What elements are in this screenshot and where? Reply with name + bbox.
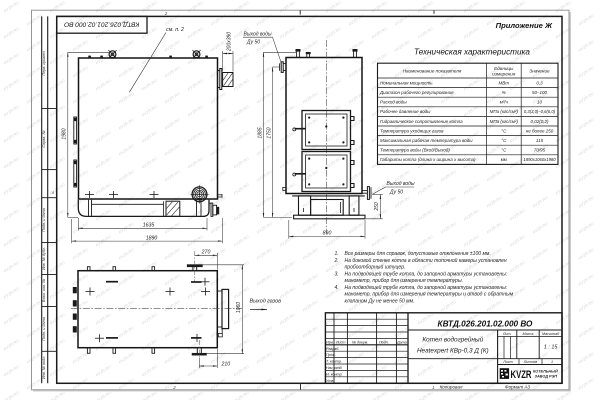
svg-text:KVZR: KVZR (511, 369, 532, 381)
svg-text:клапаном Ду не менее 50 мм.: клапаном Ду не менее 50 мм. (345, 298, 415, 304)
svg-text:Гидравлическое сопротивление к: Гидравлическое сопротивление котла (380, 119, 463, 124)
svg-text:Единицы: Единицы (494, 66, 514, 71)
svg-text:КВТД.026.201.02.000 ВО: КВТД.026.201.02.000 ВО (438, 320, 534, 329)
svg-text:1980: 1980 (61, 128, 67, 139)
svg-text:На подводящей трубе котла, до: На подводящей трубе котла, до запорной а… (345, 270, 508, 277)
svg-text:Габариты котла (длина х ширина: Габариты котла (длина х ширина х высота) (380, 157, 476, 162)
svg-text:Значение: Значение (529, 69, 550, 74)
svg-text:не более 250: не более 250 (526, 128, 554, 133)
svg-text:0,3(3,0)–0,6(6,0): 0,3(3,0)–0,6(6,0) (524, 109, 556, 114)
svg-text:№ докум.: № докум. (352, 340, 368, 344)
svg-text:Ду 50: Ду 50 (246, 39, 260, 45)
svg-text:Максимальная рабочая температу: Максимальная рабочая температура воды (380, 138, 473, 143)
svg-text:Лит.: Лит. (502, 332, 512, 336)
svg-text:°С: °С (501, 148, 507, 153)
svg-text:Ду 50: Ду 50 (389, 190, 403, 196)
svg-text:Heatexpert КВр-0,3 Д (К): Heatexpert КВр-0,3 Д (К) (417, 348, 489, 355)
svg-text:1750: 1750 (266, 127, 272, 138)
svg-text:2.: 2. (334, 258, 339, 264)
svg-text:МПа (кгс/см²): МПа (кгс/см²) (490, 109, 519, 114)
svg-text:Все размеры для справок, допус: Все размеры для справок, допустимые откл… (345, 251, 491, 257)
svg-text:пробоотборный штуцер.: пробоотборный штуцер. (345, 264, 406, 271)
svg-text:2: 2 (172, 385, 176, 390)
svg-text:2: 2 (164, 11, 168, 16)
svg-text:Номинальная мощность: Номинальная мощность (380, 80, 433, 85)
svg-text:1635: 1635 (143, 223, 155, 229)
svg-text:Подп.: Подп. (379, 340, 389, 344)
svg-text:Масштаб: Масштаб (542, 332, 560, 336)
svg-text:Листов: Листов (523, 360, 538, 364)
svg-text:1885: 1885 (257, 127, 263, 138)
svg-text:Пров.: Пров. (326, 353, 336, 357)
svg-text:На боковой стенке котла в обла: На боковой стенке котла в области топочн… (345, 257, 507, 264)
svg-text:м³/ч: м³/ч (500, 100, 509, 105)
svg-text:1.: 1. (335, 251, 339, 257)
svg-text:Приложение Ж: Приложение Ж (496, 21, 553, 30)
svg-text:270: 270 (201, 250, 211, 256)
svg-text:1890х1060х1980: 1890х1060х1980 (523, 157, 556, 162)
svg-text:Подп. и дата: Подп. и дата (42, 208, 46, 232)
svg-text:Н. контр.: Н. контр. (326, 372, 343, 376)
svg-text:%: % (502, 90, 506, 95)
svg-text:1890: 1890 (146, 235, 158, 241)
svg-text:Масса: Масса (523, 332, 534, 336)
svg-text:Инв. № подл.: Инв. № подл. (42, 356, 46, 380)
svg-text:Инв. № дубл.: Инв. № дубл. (42, 247, 46, 270)
svg-text:Котел водогрейный: Котел водогрейный (422, 336, 483, 344)
svg-text:°С: °С (501, 128, 507, 133)
svg-text:мм: мм (501, 157, 507, 162)
svg-text:Выход воды: Выход воды (244, 31, 272, 37)
svg-text:манометр, прибор для измерения: манометр, прибор для измерения температу… (345, 292, 514, 298)
svg-text:Формат А3: Формат А3 (505, 385, 531, 390)
svg-text:КОТЕЛЬНЫЙ: КОТЕЛЬНЫЙ (533, 369, 558, 373)
svg-text:Расход воды: Расход воды (380, 100, 407, 105)
svg-text:890: 890 (323, 231, 332, 237)
svg-text:50–100: 50–100 (532, 90, 548, 95)
svg-text:Техническая характеристика: Техническая характеристика (414, 48, 530, 57)
svg-text:Изм: Изм (326, 340, 333, 344)
svg-text:0,3: 0,3 (536, 80, 543, 85)
svg-text:°С: °С (501, 138, 507, 143)
svg-text:Копировал: Копировал (440, 385, 463, 390)
svg-text:МВт: МВт (499, 80, 510, 85)
svg-text:Выход воды: Выход воды (387, 181, 415, 187)
svg-text:ЗАВОД РЭП: ЗАВОД РЭП (535, 375, 558, 379)
svg-text:манометр, прибор для измерения: манометр, прибор для измерения температу… (345, 278, 464, 284)
svg-text:Нач. отд.: Нач. отд. (326, 366, 343, 370)
svg-text:Дата: Дата (396, 340, 407, 344)
svg-text:210: 210 (221, 361, 231, 367)
svg-text:Наименование показателя: Наименование показателя (403, 69, 462, 74)
svg-text:На подводящей трубе котла, до: На подводящей трубе котла, до запорной а… (345, 284, 508, 291)
svg-text:70/95: 70/95 (534, 148, 546, 153)
svg-text:МПа (кгс/см²): МПа (кгс/см²) (490, 119, 519, 124)
svg-text:Т. контр.: Т. контр. (326, 360, 342, 364)
svg-text:Разраб.: Разраб. (326, 347, 339, 351)
svg-text:1: 1 (551, 360, 553, 364)
svg-text:Подп. и дата: Подп. и дата (42, 317, 46, 341)
svg-text:Перв. примен.: Перв. примен. (42, 50, 46, 75)
svg-text:Температура воды (Вход/Выход): Температура воды (Вход/Выход) (380, 148, 450, 153)
svg-text:Взам. инв. №: Взам. инв. № (42, 279, 46, 302)
svg-text:3.: 3. (335, 271, 339, 277)
svg-text:Лист: Лист (335, 340, 346, 344)
svg-text:КВТД.026.201.02.000 ВО: КВТД.026.201.02.000 ВО (64, 21, 139, 28)
svg-text:250: 250 (374, 202, 380, 212)
svg-text:измерения: измерения (492, 72, 516, 77)
svg-text:Утв.: Утв. (326, 379, 334, 383)
svg-text:Диапазон рабочего регулировани: Диапазон рабочего регулирования (379, 90, 454, 95)
svg-text:200х390: 200х390 (227, 32, 233, 52)
svg-text:0,02(0,2): 0,02(0,2) (530, 119, 549, 124)
svg-text:Температура уходящих газов: Температура уходящих газов (380, 128, 444, 133)
svg-text:Выход газов: Выход газов (250, 299, 282, 305)
svg-text:Лист: Лист (502, 360, 513, 364)
svg-text:115: 115 (536, 138, 544, 143)
svg-text:10: 10 (537, 100, 543, 105)
svg-text:4.: 4. (335, 285, 339, 291)
svg-text:см. п. 2: см. п. 2 (166, 27, 184, 33)
svg-text:1060: 1060 (236, 302, 242, 313)
svg-text:1 : 15: 1 : 15 (544, 345, 558, 351)
svg-text:Рабочее давление воды: Рабочее давление воды (380, 109, 431, 114)
svg-text:Справ. №: Справ. № (42, 130, 46, 147)
